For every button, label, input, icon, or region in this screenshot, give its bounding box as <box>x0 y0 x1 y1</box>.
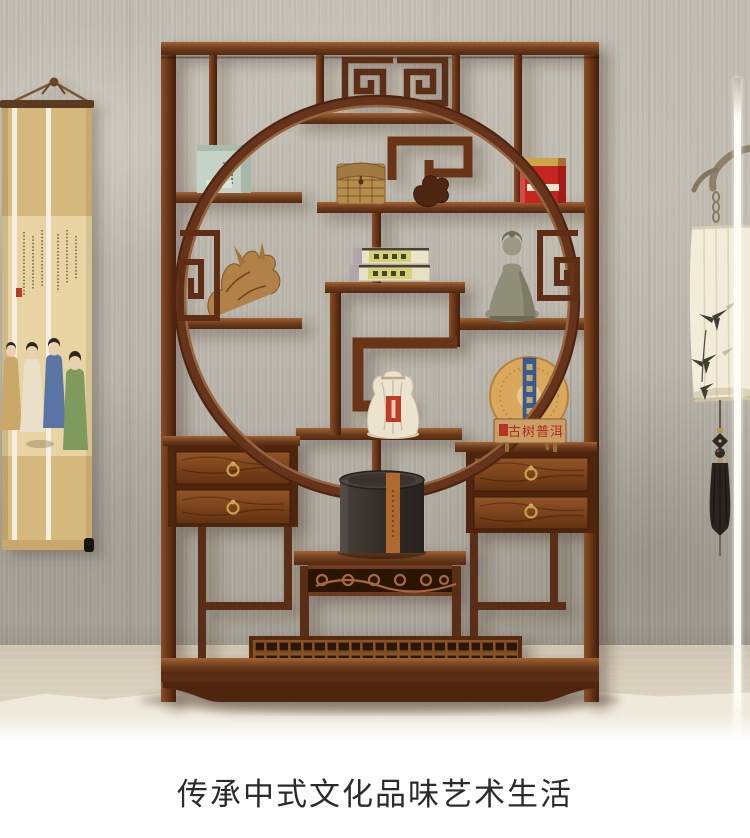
lattice-panel <box>253 640 518 658</box>
scroll-ribbon <box>12 108 17 544</box>
scroll-ribbon <box>46 108 51 544</box>
scene-svg: 古树普洱 <box>0 0 750 745</box>
hanging-scroll <box>0 78 94 553</box>
carved-apron <box>308 565 456 596</box>
base-apron <box>163 682 597 702</box>
fret-hook-top <box>392 141 468 180</box>
product-photo-page: 古树普洱 传承中式文化品味艺术生活 <box>0 0 750 838</box>
shelf-right-stile <box>584 42 599 702</box>
woven-basket <box>337 163 385 204</box>
lamp-tassel <box>710 400 731 556</box>
photo-area: 古树普洱 <box>0 0 750 745</box>
buddha-statue <box>485 231 539 322</box>
cloth-sack <box>367 371 419 439</box>
book-stack <box>350 248 430 281</box>
carved-wood-ornament <box>414 176 449 207</box>
caption-text: 传承中式文化品味艺术生活 <box>177 769 573 814</box>
scroll-roller-knob <box>84 538 94 552</box>
shelf-left-stile <box>161 42 176 702</box>
plaque-seal <box>499 424 508 436</box>
shelf-objects <box>197 145 568 450</box>
plaque-text: 古树普洱 <box>508 425 564 440</box>
curtain-light-strip <box>734 78 741 745</box>
lamp-chain <box>713 192 719 222</box>
lamp-branch-arm <box>713 148 750 188</box>
tea-caddy <box>338 471 426 559</box>
caption-area: 传承中式文化品味艺术生活 <box>0 745 750 838</box>
drawer-unit-left <box>168 446 298 527</box>
scroll-bottom-roller <box>2 540 92 550</box>
scroll-seal <box>16 288 22 297</box>
scroll-cord-knot <box>50 78 59 87</box>
shelf-top-rail <box>161 42 599 55</box>
bottom-board <box>161 658 599 674</box>
scroll-top-rod <box>0 100 94 108</box>
photo-bottom-fade <box>0 712 750 745</box>
